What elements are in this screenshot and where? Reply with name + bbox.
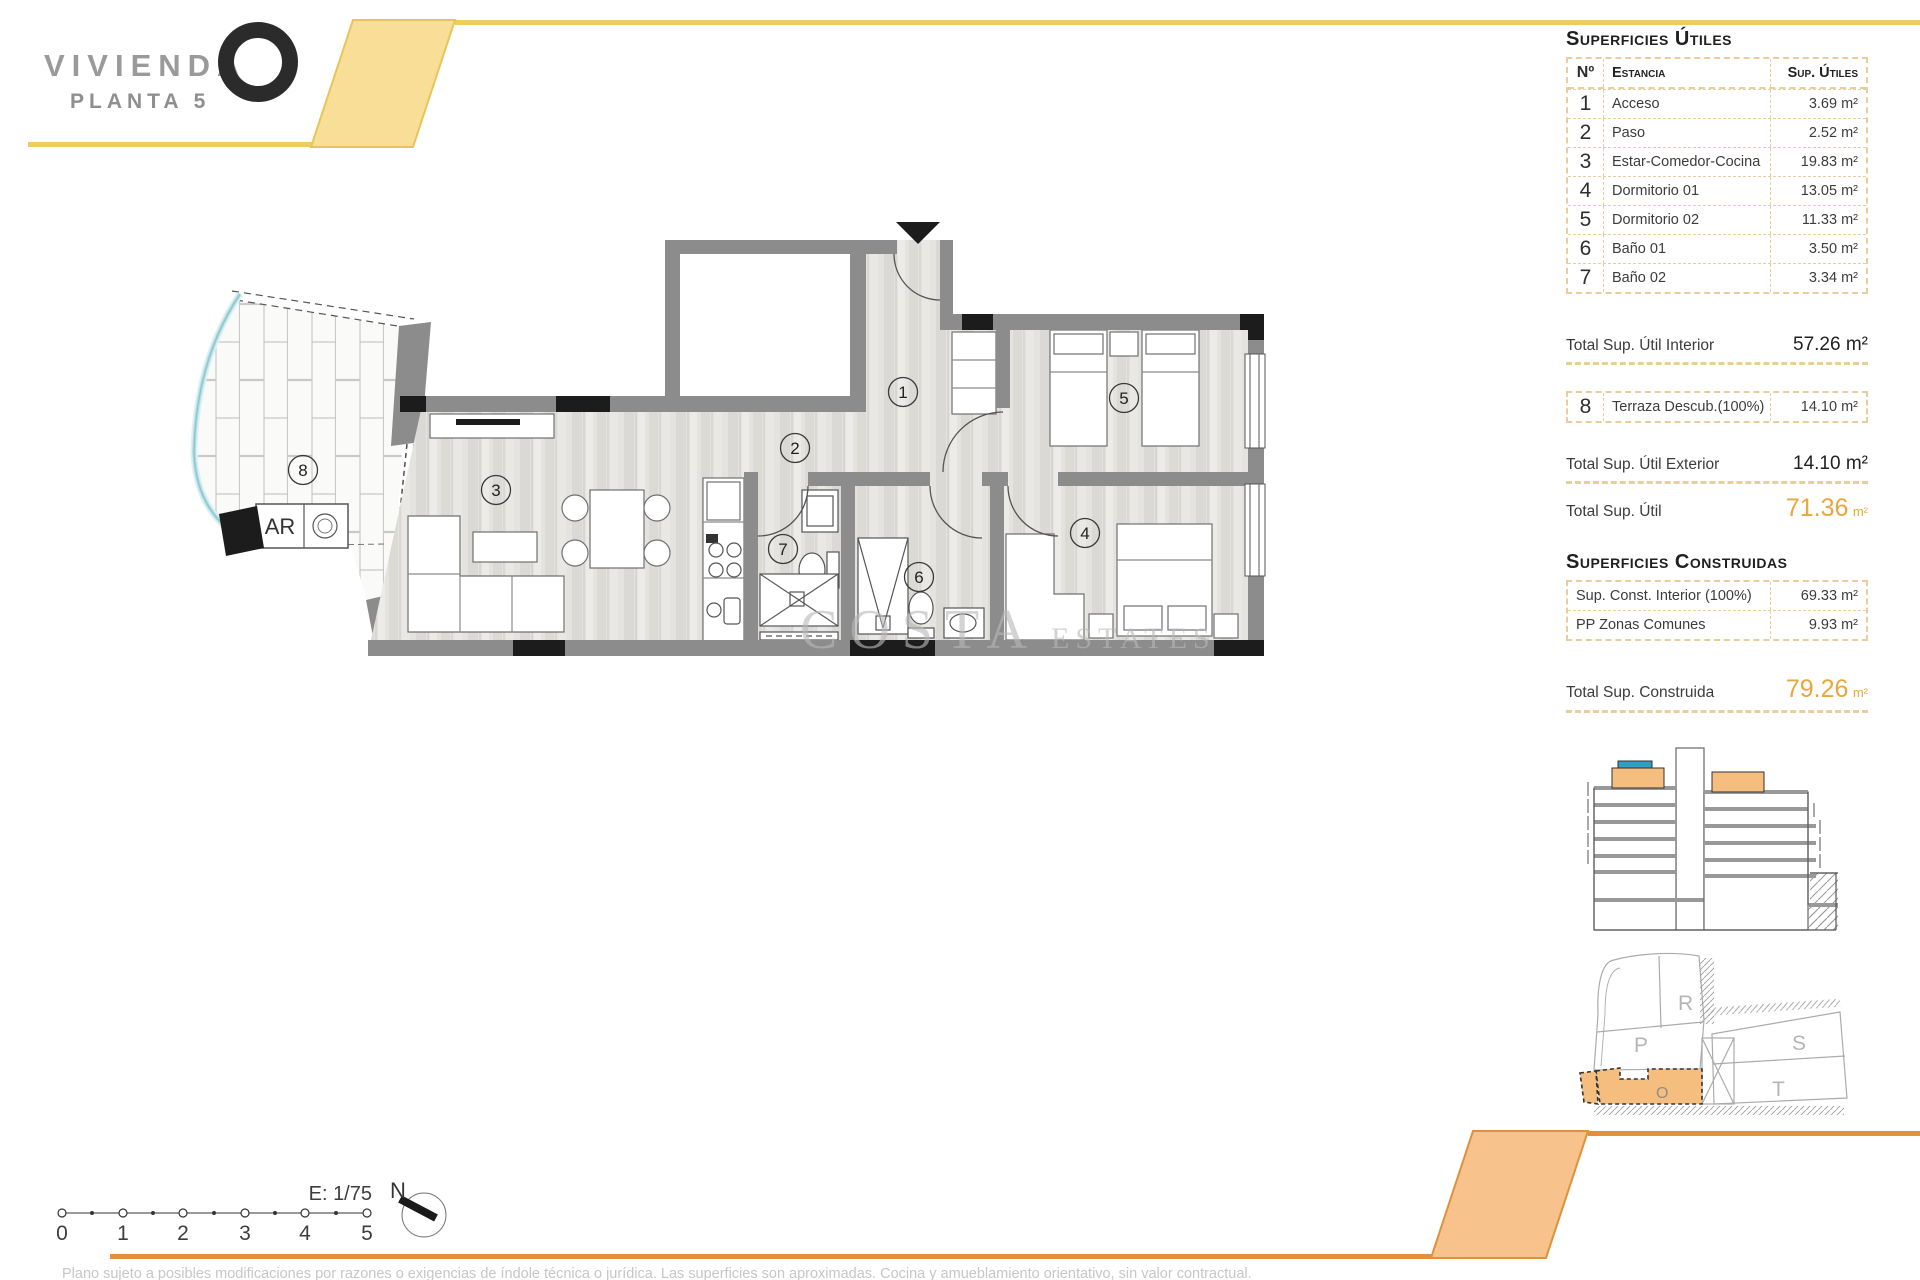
surfaces-construidas-title: Superficies Construidas bbox=[1566, 551, 1868, 574]
scale-text: E: 1/75 bbox=[309, 1183, 372, 1205]
svg-text:4: 4 bbox=[1080, 524, 1089, 543]
plan-sheet: AR bbox=[0, 0, 1920, 1280]
disclaimer-text: Plano sujeto a posibles modificaciones p… bbox=[62, 1266, 1862, 1280]
brand-name: VIVIENDA bbox=[44, 48, 246, 84]
pillar bbox=[219, 506, 264, 556]
total-interior: Total Sup. Útil Interior 57.26 m² bbox=[1566, 334, 1868, 356]
svg-text:1: 1 bbox=[898, 383, 907, 402]
table-row: 2 Paso 2.52 m² bbox=[1568, 118, 1866, 147]
lightwell bbox=[680, 254, 850, 396]
svg-text:0: 0 bbox=[56, 1222, 68, 1245]
surfaces-panel: Superficies Útiles Nº Estancia Sup. Útil… bbox=[1566, 28, 1868, 713]
terrace-row: 8 Terraza Descub.(100%) 14.10 m² bbox=[1566, 391, 1868, 423]
site-label-t: T bbox=[1772, 1078, 1785, 1101]
floor-name: PLANTA 5 bbox=[70, 90, 246, 114]
svg-text:2: 2 bbox=[790, 439, 799, 458]
chair bbox=[644, 495, 670, 521]
decor-bottom-orange bbox=[110, 1131, 1920, 1259]
bed-single bbox=[1050, 330, 1107, 446]
site-label-s: S bbox=[1792, 1032, 1806, 1055]
closet bbox=[952, 332, 996, 414]
nightstand bbox=[1110, 332, 1138, 356]
svg-text:3: 3 bbox=[491, 481, 500, 500]
table-row: 3 Estar-Comedor-Cocina 19.83 m² bbox=[1568, 147, 1866, 176]
site-label-r: R bbox=[1678, 992, 1693, 1015]
total-exterior: Total Sup. Útil Exterior 14.10 m² bbox=[1566, 453, 1868, 475]
highlight-unit-site bbox=[1596, 1068, 1702, 1104]
console bbox=[430, 414, 554, 438]
ar-label: AR bbox=[265, 514, 296, 539]
chair bbox=[644, 540, 670, 566]
nightstand bbox=[1214, 614, 1238, 638]
svg-text:5: 5 bbox=[361, 1222, 373, 1245]
table-row: 6 Baño 01 3.50 m² bbox=[1568, 234, 1866, 263]
ar-unit: AR bbox=[256, 504, 348, 548]
table-row: PP Zonas Comunes 9.93 m² bbox=[1568, 610, 1866, 639]
svg-text:6: 6 bbox=[914, 568, 923, 587]
pool-icon bbox=[1618, 761, 1652, 768]
table-row: 7 Baño 02 3.34 m² bbox=[1568, 263, 1866, 292]
bed-double bbox=[1117, 524, 1212, 636]
svg-text:1: 1 bbox=[117, 1222, 129, 1245]
svg-text:8: 8 bbox=[298, 461, 307, 480]
site-label-o: O bbox=[1656, 1085, 1668, 1102]
total-util: Total Sup. Útil 71.36 m² bbox=[1566, 494, 1868, 523]
svg-text:7: 7 bbox=[778, 540, 787, 559]
table-header: Nº Estancia Sup. Útiles bbox=[1568, 59, 1866, 89]
svg-text:4: 4 bbox=[299, 1222, 311, 1245]
surfaces-utiles-title: Superficies Útiles bbox=[1566, 28, 1868, 51]
logo: VIVIENDA PLANTA 5 bbox=[44, 48, 246, 114]
svg-text:3: 3 bbox=[239, 1222, 251, 1245]
table-row: 4 Dormitorio 01 13.05 m² bbox=[1568, 176, 1866, 205]
bed-single bbox=[1142, 330, 1199, 446]
site-plan: P R S T O bbox=[1580, 953, 1847, 1115]
north-arrow-icon: N bbox=[390, 1178, 446, 1237]
site-label-p: P bbox=[1634, 1034, 1648, 1057]
highlight-unit-left bbox=[1612, 768, 1664, 788]
kitchen bbox=[703, 478, 744, 642]
nightstand bbox=[1089, 614, 1113, 638]
total-construida: Total Sup. Construida 79.26 m² bbox=[1566, 675, 1868, 704]
svg-text:2: 2 bbox=[177, 1222, 189, 1245]
table-row: Sup. Const. Interior (100%) 69.33 m² bbox=[1568, 582, 1866, 610]
dining-table bbox=[590, 490, 644, 568]
chair bbox=[562, 540, 588, 566]
north-label: N bbox=[390, 1178, 406, 1203]
coffee-table bbox=[473, 532, 537, 562]
svg-text:5: 5 bbox=[1119, 389, 1128, 408]
highlight-unit-right bbox=[1712, 772, 1764, 792]
chair bbox=[562, 495, 588, 521]
brand-ring-icon bbox=[218, 22, 298, 102]
section-diagram bbox=[1588, 748, 1838, 930]
table-row: 5 Dormitorio 02 11.33 m² bbox=[1568, 205, 1866, 234]
surfaces-construidas-table: Sup. Const. Interior (100%) 69.33 m² PP … bbox=[1566, 580, 1868, 641]
tv bbox=[456, 419, 520, 425]
scale-bar: 0 1 2 3 4 5 E: 1/75 bbox=[56, 1183, 373, 1245]
table-row: 1 Acceso 3.69 m² bbox=[1568, 89, 1866, 118]
surfaces-utiles-table: Nº Estancia Sup. Útiles 1 Acceso 3.69 m²… bbox=[1566, 57, 1868, 294]
